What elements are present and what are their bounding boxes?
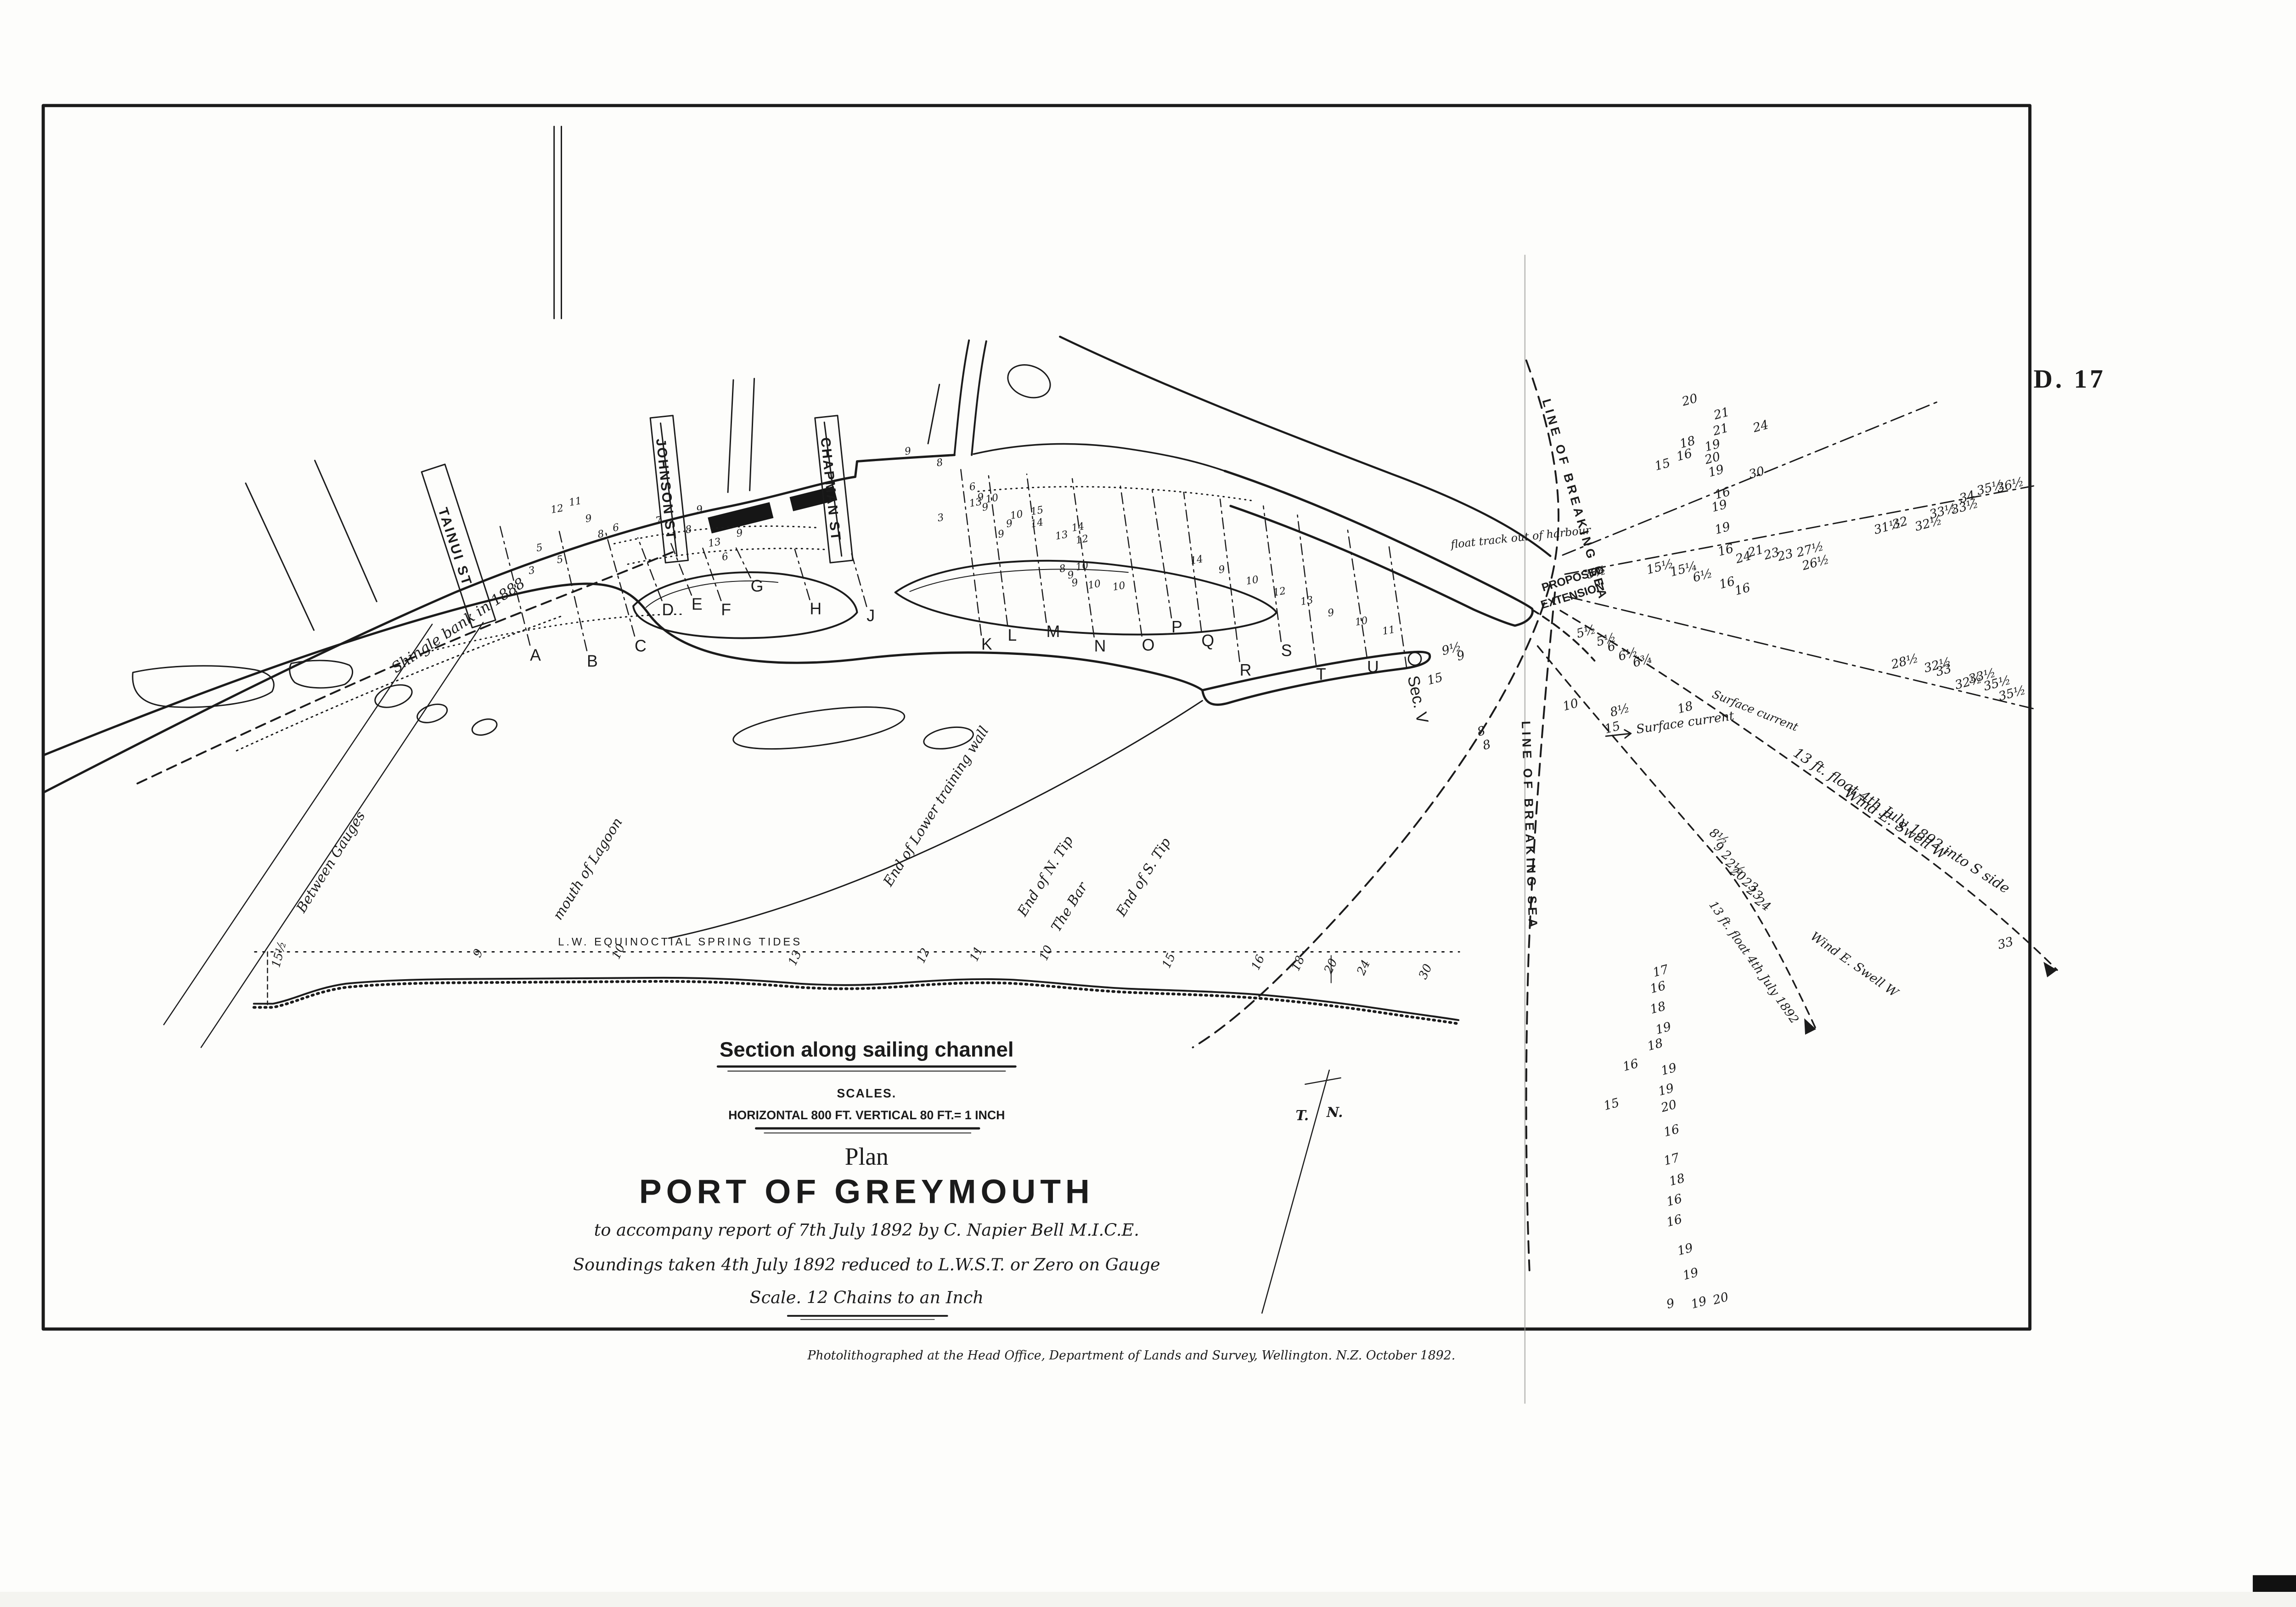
section-letters: ABCDEFGHJKLMNOPQRSTU <box>530 577 1379 683</box>
sounding-value: 9 <box>1071 577 1079 589</box>
sounding-value: 21 <box>1712 405 1731 423</box>
sounding-value: 8 <box>936 457 944 469</box>
sounding-value: 16 <box>1665 1212 1684 1230</box>
sounding-value: 16 <box>1662 1122 1681 1140</box>
sounding-value: 16 <box>1675 446 1694 464</box>
true-north-t: T. <box>1295 1108 1309 1124</box>
sounding-value: 21 <box>1711 421 1730 439</box>
sounding-value: 19 <box>1689 1294 1708 1312</box>
northeast-coast <box>1060 337 1550 556</box>
profile-depth-label: 20 <box>1321 957 1340 976</box>
sounding-value: 10 <box>1561 696 1580 714</box>
sounding-value: 14 <box>1030 517 1045 530</box>
seabed-hachures <box>254 981 1458 1024</box>
section-letter: T <box>1316 665 1326 683</box>
section-letter: G <box>751 577 764 595</box>
sounding-value: 17 <box>1662 1150 1681 1168</box>
line-of-breaking-sea-west <box>1193 361 1559 1048</box>
sounding-value: 9 <box>1327 607 1335 619</box>
sounding-value: 19 <box>1681 1265 1700 1283</box>
sounding-value: 19 <box>1676 1240 1694 1258</box>
main-title: PORT OF GREYMOUTH <box>639 1173 1094 1210</box>
profile-depth-label: 10 <box>1037 943 1056 963</box>
sounding-value: 10 <box>1075 560 1090 573</box>
sounding-value: 14 <box>1189 553 1204 567</box>
section-letter: E <box>692 595 703 614</box>
scale-note: Scale. 12 Chains to an Inch <box>750 1287 984 1307</box>
sounding-value: 8 <box>685 524 693 536</box>
north-training-wall <box>1225 471 1532 626</box>
sounding-value: 15 <box>1426 670 1445 688</box>
line-of-breaking-sea-label: LINE OF BREAKING SEA <box>1519 721 1540 930</box>
scales-heading: SCALES. <box>837 1087 896 1100</box>
section-letter: A <box>530 646 541 664</box>
sounding-value: 8½ <box>1609 701 1631 720</box>
true-north-line <box>1262 1070 1329 1313</box>
section-letter: F <box>721 600 731 619</box>
profile-depths: 15½91013121110151618202430 <box>269 940 1435 981</box>
report-subtitle: to accompany report of 7th July 1892 by … <box>594 1220 1139 1240</box>
true-north-cross <box>1305 1078 1340 1084</box>
sounding-value: 13 <box>707 536 722 549</box>
sounding-value: 12 <box>1272 585 1287 598</box>
sounding-value: 19 <box>1654 1020 1673 1038</box>
section-letter: S <box>1281 642 1292 660</box>
float-track-label: float track out of harbour <box>1449 524 1592 551</box>
station-label: The Bar <box>1048 879 1091 935</box>
station-labels: Between Gaugesmouth of LagoonEnd of Lowe… <box>293 723 1174 935</box>
sounding-value: 3 <box>528 564 536 577</box>
creek-inlet <box>954 340 986 455</box>
profile-depth-label: 15½ <box>269 940 289 969</box>
datum-label: L.W. EQUINOCTIAL SPRING TIDES <box>558 936 802 948</box>
section-letter: M <box>1047 622 1060 641</box>
section-letter: O <box>1142 636 1155 654</box>
sounding-value: 17 <box>1651 962 1670 980</box>
sounding-value: 15 <box>1030 504 1045 518</box>
sounding-value: 10 <box>985 492 1000 505</box>
section-title: Section along sailing channel <box>720 1038 1014 1061</box>
street-lines <box>246 126 940 630</box>
section-letter: H <box>810 599 822 618</box>
imprint: Photolithographed at the Head Office, De… <box>807 1348 1455 1363</box>
street-extension-lines <box>164 622 483 1047</box>
map-annotations: Shingle bank in 1888LINE OF BREAKING SEA… <box>388 397 2013 1026</box>
sounding-value: 9 <box>585 513 593 525</box>
sounding-value: 9 <box>736 527 744 540</box>
sounding-value: 15 <box>1603 719 1622 737</box>
profile-depth-label: 12 <box>914 946 933 965</box>
map-canvas: D. 17 <box>0 0 2296 1592</box>
wind-swell-label: Wind E. Swell W <box>1808 929 1902 1001</box>
south-bank <box>43 584 1202 756</box>
sounding-value: 13 <box>1300 594 1314 608</box>
sounding-value: 33 <box>1996 935 2015 953</box>
true-north-n: N. <box>1326 1105 1343 1121</box>
north-shoreline <box>974 444 1225 471</box>
sounding-value: 13 <box>1054 529 1069 542</box>
section-letter: R <box>1240 661 1252 679</box>
river-bend-bank <box>1003 359 1055 403</box>
sounding-value: 30 <box>1747 464 1766 482</box>
sounding-value: 11 <box>568 495 583 508</box>
wall-tip-beacon <box>1408 653 1421 665</box>
sounding-value: 9 <box>904 445 912 458</box>
sounding-value: 19 <box>1710 497 1729 515</box>
sounding-value: 18 <box>1668 1171 1687 1189</box>
plan-label: Plan <box>845 1143 889 1170</box>
float-track-arrowheads <box>1804 962 2057 1035</box>
sounding-value: 5 <box>556 553 564 566</box>
section-letter: Q <box>1201 632 1214 650</box>
street-bar-johnson: JOHNSON ST <box>650 416 688 563</box>
profile-depth-label: 30 <box>1416 962 1435 981</box>
sounding-value: 8 <box>597 528 605 541</box>
sounding-value: 19 <box>1713 519 1732 537</box>
sounding-value: 19 <box>1657 1081 1676 1099</box>
section-letter: C <box>635 637 647 655</box>
sounding-value: 10 <box>1112 580 1126 593</box>
scan-edge-mark <box>2253 1575 2296 1592</box>
sounding-value: 12 <box>550 502 564 516</box>
coastline-group <box>43 337 1550 938</box>
station-label: Between Gauges <box>293 808 368 916</box>
sounding-value: 16 <box>1733 581 1752 598</box>
sounding-value: 16 <box>1718 574 1737 592</box>
section-letter: D <box>662 600 674 619</box>
wind-swell-label: Wind E. Swell W <box>1841 784 1951 863</box>
sounding-value: 9 <box>1665 1296 1676 1312</box>
profile-depth-label: 24 <box>1354 958 1373 978</box>
sounding-value: 10 <box>1087 578 1102 591</box>
sounding-value: 3 <box>936 512 945 524</box>
sounding-value: 14 <box>1071 521 1086 534</box>
sheet-number: D. 17 <box>2033 365 2105 394</box>
sounding-value: 9 <box>695 503 703 516</box>
sounding-value: 20 <box>1659 1097 1678 1115</box>
profile-depth-label: 9 <box>470 947 486 960</box>
soundings-subtitle: Soundings taken 4th July 1892 reduced to… <box>573 1255 1160 1274</box>
sounding-value: 13 <box>968 496 983 509</box>
sounding-value: 9 <box>997 528 1005 541</box>
sounding-value: 5½ <box>1575 622 1597 641</box>
lagoon-pond <box>372 681 415 711</box>
sounding-value: 6 <box>612 522 620 534</box>
sounding-value: 28½ <box>1889 651 1920 672</box>
section-letter: U <box>1367 658 1379 676</box>
profile-depth-label: 11 <box>967 944 986 964</box>
sounding-value: 15 <box>1653 456 1672 474</box>
sounding-value: 6 <box>968 481 977 493</box>
float-track-label: 13 ft. float 4th July 1892 <box>1706 898 1801 1026</box>
sounding-value: 15 <box>1602 1095 1621 1113</box>
sounding-value: 11 <box>1381 624 1396 637</box>
sounding-value: 5 <box>535 542 544 554</box>
sounding-value: 20 <box>1680 391 1699 409</box>
profile-depth-label: 18 <box>1289 954 1308 973</box>
sounding-value: 10 <box>1245 574 1260 587</box>
sounding-value: 20 <box>1711 1290 1730 1308</box>
sounding-value: 16 <box>1649 979 1667 997</box>
sounding-value: 16 <box>1665 1191 1684 1209</box>
sounding-value: 16 <box>1716 541 1735 559</box>
section-letter: N <box>1094 637 1106 655</box>
sounding-value: 19 <box>1660 1060 1678 1078</box>
profile-depth-label: 16 <box>1249 953 1267 972</box>
lagoon-pond <box>470 716 499 738</box>
lagoon <box>731 699 907 757</box>
line-of-breaking-sea-south <box>1526 592 1555 1270</box>
sounding-value: 8 <box>1058 563 1067 575</box>
section-letter: K <box>981 635 992 654</box>
scales-detail: HORIZONTAL 800 FT. VERTICAL 80 FT.= 1 IN… <box>728 1108 1005 1122</box>
quay-shoreline <box>43 455 954 793</box>
sounding-value: 10 <box>1354 615 1369 628</box>
section-letter: L <box>1007 626 1017 644</box>
sounding-value: 18 <box>1646 1036 1665 1054</box>
station-label: mouth of Lagoon <box>550 815 626 923</box>
street-bar-chapman: CHAPMAN ST <box>815 416 853 563</box>
sounding-value: 18 <box>1649 999 1667 1017</box>
sounding-value: 32 <box>1891 514 1909 532</box>
sounding-value: 12 <box>1075 533 1090 546</box>
station-label: End of S. Tip <box>1113 835 1174 919</box>
dashed-features <box>137 361 2057 1270</box>
sounding-value: 18 <box>1676 699 1694 716</box>
lagoon-pond <box>415 701 450 726</box>
sounding-value: 6 <box>721 551 729 563</box>
section-letter: P <box>1171 618 1182 636</box>
sounding-value: 8 <box>1481 737 1492 753</box>
section-letter: J <box>867 606 875 625</box>
true-north-group: T. N. <box>1262 1070 1343 1313</box>
sounding-value: 24 <box>1751 417 1770 435</box>
section-letter: B <box>587 652 598 670</box>
old-bank-dotted-line <box>236 615 564 750</box>
sounding-value: 9 <box>1455 648 1466 664</box>
chart-sheet: D. 17 <box>0 0 2296 1592</box>
profile-depth-label: 15 <box>1159 951 1178 970</box>
sounding-value: 16 <box>1621 1056 1640 1074</box>
title-block: Section along sailing channel SCALES. HO… <box>573 1038 1160 1319</box>
sounding-value: 9 <box>1218 564 1226 576</box>
